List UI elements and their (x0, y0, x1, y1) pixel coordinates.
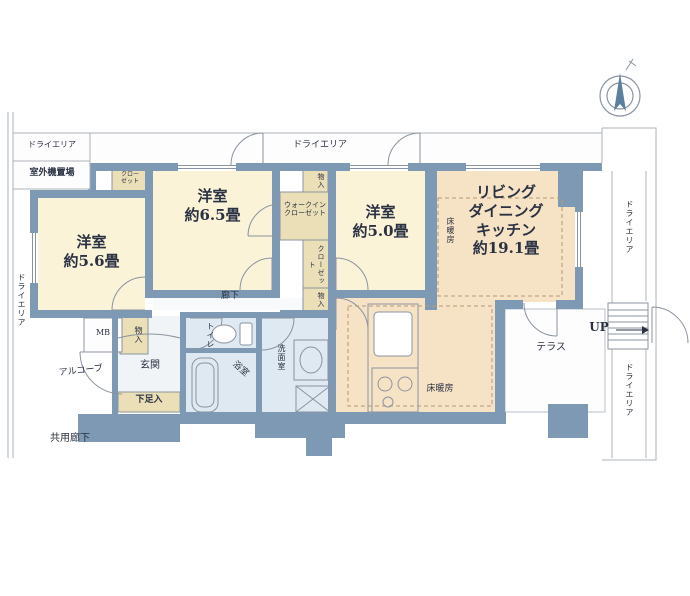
dry-area-right-lower-label: ドライエリア (620, 358, 634, 422)
terrace-label: テラス (528, 342, 574, 355)
walk-in-closet-label: ウォークイン クローゼット (281, 201, 329, 217)
bedroom-65-label: 洋室 約6.5畳 (153, 187, 272, 225)
meter-box-label: MB (86, 328, 120, 338)
corridor-label: 廊下 (205, 291, 255, 302)
floor-plan: ドライエリア 室外機置場 ドライエリア ドライエリア ドライエリア ドライエリア… (0, 0, 690, 596)
floor-heating-ldk-label: 床暖房 (440, 206, 455, 254)
shoe-box-label: 下足入 (118, 395, 180, 406)
compass-icon (600, 59, 640, 116)
outdoor-unit-label: 室外機置場 (15, 168, 89, 179)
dry-area-top-label: ドライエリア (285, 140, 355, 151)
entrance-label: 玄関 (128, 360, 172, 373)
toilet-label: トイレ (201, 318, 215, 352)
bedroom-56-label: 洋室 約5.6畳 (38, 233, 145, 271)
floor-plan-drawing (0, 0, 690, 596)
stairs (608, 303, 649, 349)
common-corridor-label: 共用廊下 (38, 433, 102, 446)
closet-mid-label: クローゼット (307, 243, 325, 287)
bedroom-50-label: 洋室 約5.0畳 (336, 203, 425, 241)
dry-area-top-left-label: ドライエリア (16, 140, 88, 150)
stairs-up-label: UP (586, 320, 612, 335)
closet-small-label: クロー ゼット (112, 172, 148, 186)
dry-area-left-label: ドライエリア (12, 264, 26, 336)
ldk-label: リビング ダイニング キッチン 約19.1畳 (437, 183, 575, 258)
storage-top-label: 物入 (307, 169, 325, 193)
storage-mid-label: 物入 (307, 290, 325, 310)
floor-heating-kitchen-label: 床暖房 (418, 384, 462, 395)
washroom-label: 洗面室 (272, 334, 286, 380)
dry-area-right-upper-label: ドライエリア (620, 192, 634, 262)
storage-entry-label: 物入 (125, 318, 143, 352)
